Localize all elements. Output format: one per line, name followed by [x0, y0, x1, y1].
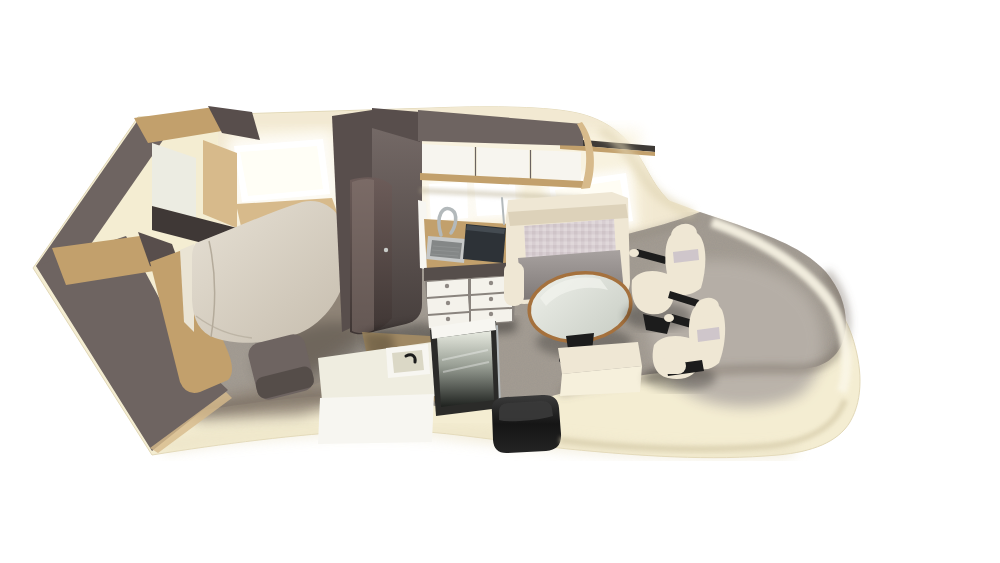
kitchen-hob	[463, 224, 506, 263]
kitchen-window-left	[425, 178, 472, 225]
vanity-front	[318, 394, 434, 444]
bathroom-door-highlight	[352, 179, 374, 333]
rv-interior-render	[0, 0, 1000, 563]
render-canvas	[0, 0, 1000, 563]
washbasin-bowl	[392, 350, 424, 373]
bedroom-window-glass	[240, 146, 323, 196]
overhead-locker-door-1	[422, 144, 474, 176]
bench-armrest	[504, 262, 524, 306]
seat-front-armrest-cap	[664, 314, 674, 322]
entry-step	[492, 395, 561, 453]
kitchen-sink	[426, 236, 466, 263]
shower-mirror-panel	[430, 318, 500, 416]
mirror-glass	[437, 331, 494, 407]
seat-front-foot-cap	[658, 358, 686, 374]
seat-rear-armrest-cap	[629, 249, 639, 257]
side-bench	[558, 342, 642, 396]
washbasin	[386, 344, 430, 378]
seat-rear-cushion	[632, 271, 674, 314]
headboard-wood-panel	[203, 140, 237, 228]
kitchen-window-left-frame	[429, 182, 468, 221]
overhead-locker-door-2	[477, 147, 529, 178]
overhead-locker-door-3	[532, 150, 581, 181]
bedroom-window	[228, 132, 338, 208]
door-handle	[384, 248, 388, 252]
